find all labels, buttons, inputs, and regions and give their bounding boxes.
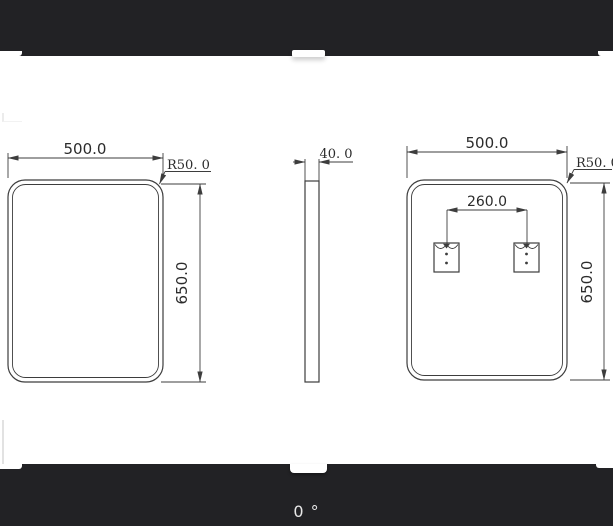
crop-handle-bottom-left[interactable] [0,464,22,469]
front-radius-leader [160,172,166,185]
back-radius-leader [567,170,574,184]
bottom-bar: 0 ° [0,464,613,526]
side-thickness-label: 40. 0 [319,147,352,162]
front-outer-outline [8,180,163,382]
crop-handle-top-center[interactable] [292,50,325,57]
crop-handle-top-left[interactable] [0,51,22,56]
mirror-dimension-diagram: 500.0 R50. 0 650.0 40. 0 [0,56,613,464]
crop-border-left-mark [2,420,4,464]
back-width-dim-label: 500.0 [466,134,509,152]
front-height-dim-label: 650.0 [173,262,191,305]
crop-border-top-left-mark [2,113,22,122]
back-view: 500.0 R50. 0 650.0 260.0 [407,134,613,380]
back-inner-outline [412,185,563,376]
top-bar [0,0,613,56]
hanger-bracket-left [434,243,459,272]
crop-handle-top-right[interactable] [598,51,613,56]
side-outline [305,181,319,382]
hanger-spacing-dim-label: 260.0 [467,194,507,210]
hanger-bracket-right [514,243,539,272]
front-view: 500.0 R50. 0 650.0 [8,140,211,382]
back-height-dim-label: 650.0 [578,261,596,304]
front-width-dim-label: 500.0 [64,140,107,158]
crop-handle-bottom-right[interactable] [596,464,613,468]
front-radius-label: R50. 0 [167,158,210,173]
drawing-canvas[interactable]: 500.0 R50. 0 650.0 40. 0 [0,56,613,464]
image-editor-screen: 500.0 R50. 0 650.0 40. 0 [0,0,613,526]
rotation-angle-label: 0 ° [0,502,613,521]
front-inner-outline [13,185,159,378]
side-view: 40. 0 [293,147,353,382]
back-radius-label: R50. 0 [576,156,613,171]
crop-handle-bottom-center[interactable] [290,464,327,473]
